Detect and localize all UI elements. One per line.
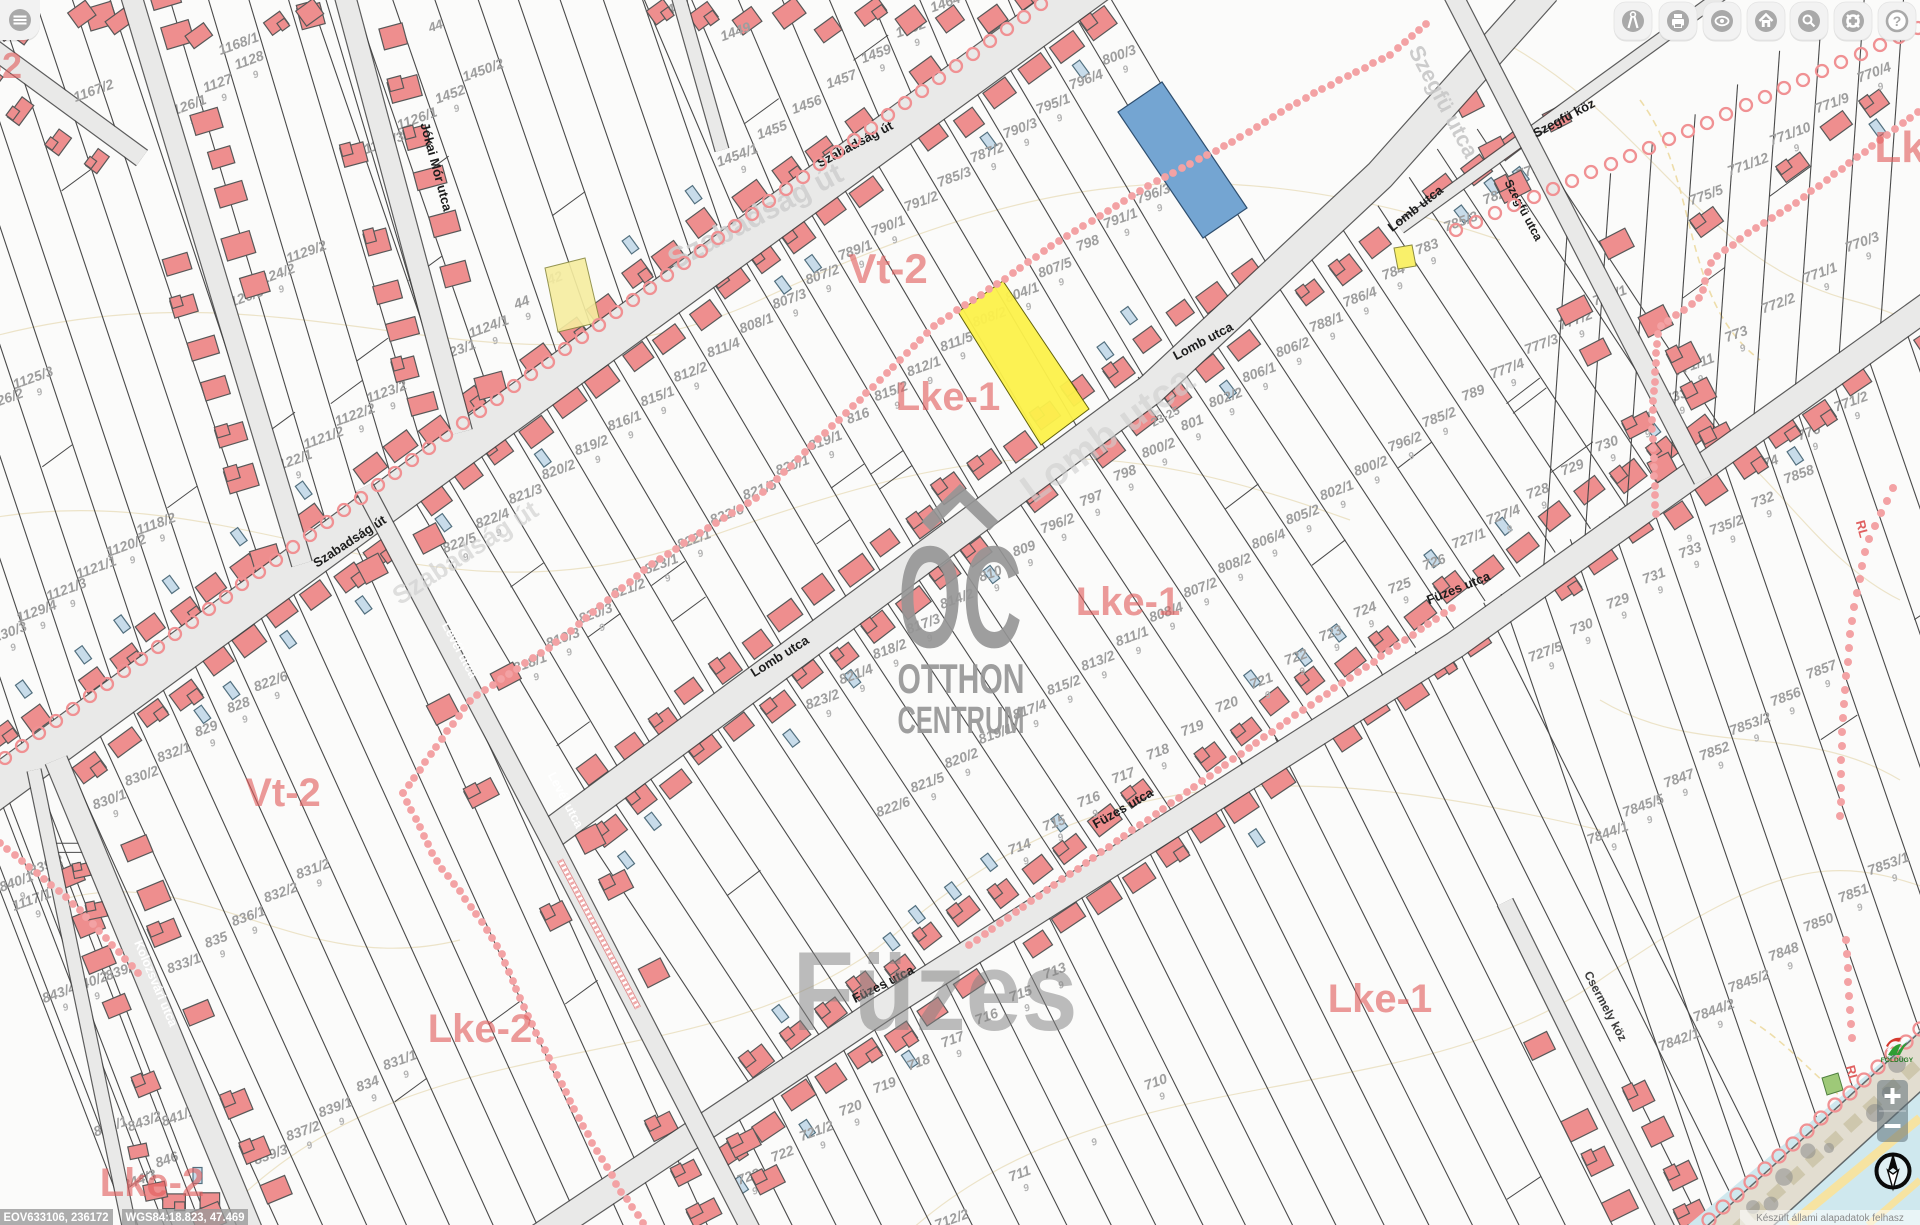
svg-text:EOV633106, 236172: EOV633106, 236172 [4, 1210, 109, 1224]
svg-text:?: ? [1893, 13, 1902, 29]
svg-text:-2: -2 [0, 45, 22, 86]
svg-text:Készült állami alapadatok felh: Készült állami alapadatok felhasz [1756, 1213, 1904, 1224]
svg-text:Vt-2: Vt-2 [245, 771, 321, 815]
svg-text:OTTHON: OTTHON [898, 655, 1025, 702]
svg-text:WGS84:18.823, 47.469: WGS84:18.823, 47.469 [126, 1210, 245, 1224]
svg-text:FÖLDÜGY: FÖLDÜGY [1881, 1055, 1914, 1064]
svg-text:Lke-1: Lke-1 [1076, 580, 1181, 624]
svg-text:Lke-1: Lke-1 [896, 375, 1001, 419]
svg-text:OC: OC [898, 516, 1022, 678]
svg-text:Lke-2: Lke-2 [428, 1007, 533, 1051]
svg-text:Vt-2: Vt-2 [848, 245, 927, 292]
svg-text:CENTRUM: CENTRUM [898, 700, 1025, 742]
svg-text:Lk: Lk [1874, 123, 1920, 172]
svg-text:Füzes: Füzes [793, 929, 1078, 1054]
svg-text:Lke-2: Lke-2 [100, 1161, 205, 1205]
svg-text:Lke-1: Lke-1 [1328, 977, 1433, 1021]
